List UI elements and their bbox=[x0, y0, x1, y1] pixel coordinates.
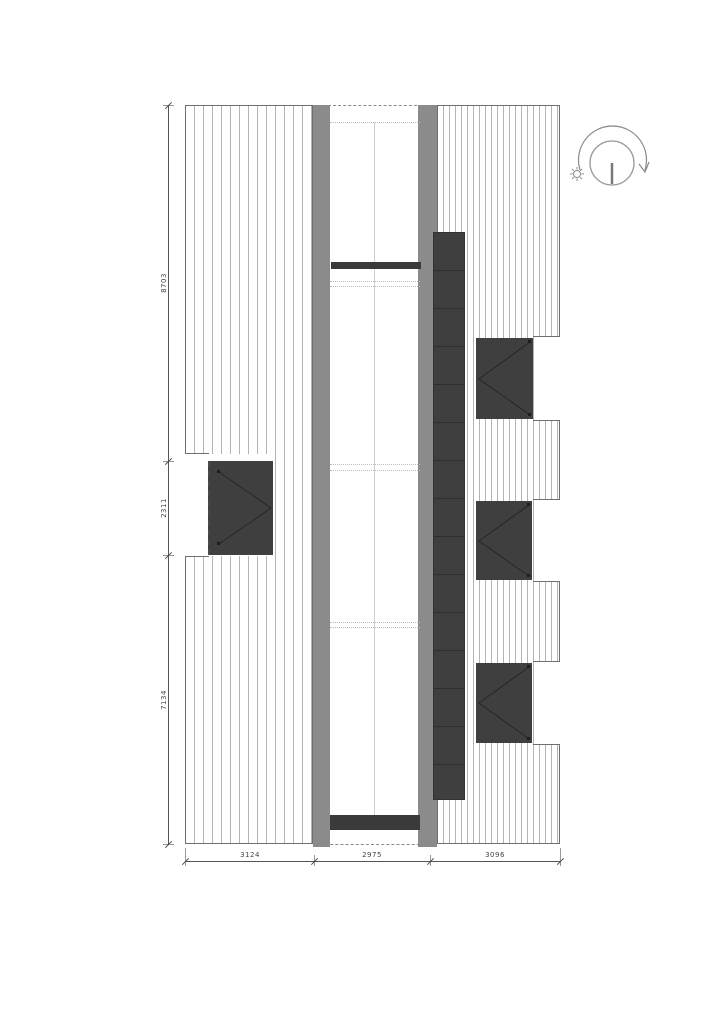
left-skylight-opening-chevron-icon bbox=[210, 461, 275, 555]
left-dimension-line bbox=[168, 105, 169, 845]
right-skylight-1-chevron-icon bbox=[476, 338, 533, 419]
left-notch-top-edge bbox=[185, 453, 209, 454]
corridor-top-dashed-edge bbox=[328, 105, 422, 106]
bottom-dimension-line bbox=[185, 861, 560, 862]
corridor-dotted-line-3 bbox=[330, 286, 420, 287]
right-roof-notch-3 bbox=[534, 662, 564, 744]
corridor-beam-top bbox=[331, 262, 421, 269]
bottom-dim-ext-1 bbox=[185, 848, 186, 866]
dimension-label-2975: 2975 bbox=[342, 851, 402, 859]
dimension-label-7134: 7134 bbox=[160, 680, 168, 720]
dimension-label-3096: 3096 bbox=[465, 851, 525, 859]
left-notch-bottom-edge bbox=[185, 556, 209, 557]
panel-strip bbox=[433, 232, 465, 800]
corridor-dotted-line-2 bbox=[330, 281, 420, 282]
dimension-label-3124: 3124 bbox=[220, 851, 280, 859]
right-skylight-3-chevron-icon bbox=[476, 663, 532, 743]
corridor-wall-left bbox=[313, 105, 330, 847]
right-roof-notch-2 bbox=[534, 500, 564, 581]
corridor-dotted-line-1 bbox=[330, 122, 420, 123]
corridor-beam-bottom bbox=[330, 815, 420, 830]
arrowhead bbox=[639, 162, 649, 172]
right-skylight-box-2 bbox=[476, 501, 532, 580]
corridor-dotted-line-7 bbox=[330, 627, 420, 628]
right-notch3-top-edge bbox=[533, 661, 560, 662]
architectural-roof-plan: 8703 2311 7134 3124 2975 3096 bbox=[0, 0, 724, 1024]
corridor-dotted-line-5 bbox=[330, 470, 420, 471]
sun-path-rotation-icon bbox=[565, 112, 675, 202]
corridor-dotted-line-4 bbox=[330, 464, 420, 465]
sun-icon bbox=[570, 167, 584, 181]
corridor-dotted-line-6 bbox=[330, 622, 420, 623]
right-skylight-box-1 bbox=[476, 338, 533, 419]
corridor-bottom-dashed-edge bbox=[315, 844, 430, 845]
right-skylight-2-chevron-icon bbox=[476, 501, 532, 580]
right-notch3-bottom-edge bbox=[533, 744, 560, 745]
right-notch2-bottom-edge bbox=[533, 581, 560, 582]
right-notch1-bottom-edge bbox=[533, 420, 560, 421]
bottom-dim-ext-4 bbox=[560, 848, 561, 866]
dimension-label-8703: 8703 bbox=[160, 263, 168, 303]
left-skylight-box bbox=[208, 461, 273, 555]
right-notch1-top-edge bbox=[533, 336, 560, 337]
right-roof-notch-1 bbox=[534, 337, 564, 420]
right-notch2-top-edge bbox=[533, 499, 560, 500]
corridor-center-line bbox=[374, 122, 375, 815]
dimension-label-2311: 2311 bbox=[160, 488, 168, 528]
right-skylight-box-3 bbox=[476, 663, 532, 743]
